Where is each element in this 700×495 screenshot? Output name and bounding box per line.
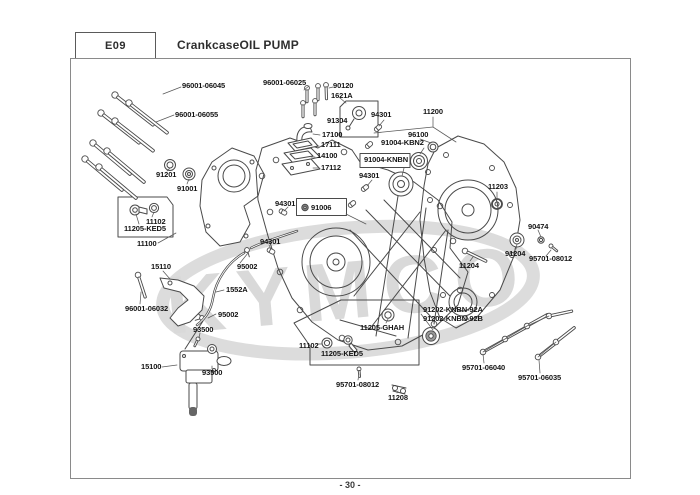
- part-label-11205-GHAH: 11205-GHAH: [360, 324, 404, 332]
- part-label-91204: 91204: [505, 250, 525, 258]
- part-label-95002-b: 95002: [218, 311, 238, 319]
- part-label-96001-06025: 96001-06025: [263, 79, 306, 87]
- part-label-91004-KNBN: 91004-KNBN: [364, 156, 408, 164]
- part-label-90120: 90120: [333, 82, 353, 90]
- part-label-95701-06040: 95701-06040: [462, 364, 505, 372]
- part-label-94301-a: 94301: [371, 111, 391, 119]
- part-label-15100: 15100: [141, 363, 161, 371]
- part-label-94301-d: 94301: [260, 238, 280, 246]
- part-label-11205-KED5-a: 11205-KED5: [124, 225, 166, 233]
- part-label-11100: 11100: [137, 240, 157, 248]
- part-label-91201: 91201: [156, 171, 176, 179]
- part-label-11102-b: 11102: [299, 342, 319, 350]
- part-label-91006: 91006: [311, 204, 331, 212]
- part-label-95701-08012-a: 95701-08012: [529, 255, 572, 263]
- part-label-1621A: 1621A: [331, 92, 353, 100]
- part-label-15110: 15110: [151, 263, 171, 271]
- part-label-90474: 90474: [528, 223, 548, 231]
- part-label-14100: 14100: [317, 152, 337, 160]
- part-label-95701-06035: 95701-06035: [518, 374, 561, 382]
- exploded-diagram: KYMCO: [0, 0, 700, 495]
- part-label-11200: 11200: [423, 108, 443, 116]
- part-label-11203: 11203: [488, 183, 508, 191]
- part-label-91202-KNBN-92B: 91202-KNBN-92B: [423, 315, 483, 323]
- part-label-17100: 17100: [322, 131, 342, 139]
- part-label-93500-a: 93500: [193, 326, 213, 334]
- part-label-17111: 17111: [321, 141, 341, 149]
- page-number: - 30 -: [0, 480, 700, 490]
- part-label-96001-06045: 96001-06045: [182, 82, 225, 90]
- part-label-91001: 91001: [177, 185, 197, 193]
- part-label-96001-06032: 96001-06032: [125, 305, 168, 313]
- part-label-95002-a: 95002: [237, 263, 257, 271]
- part-label-11204: 11204: [459, 262, 479, 270]
- part-label-95701-08012-b: 95701-08012: [336, 381, 379, 389]
- part-label-11205-KED5-b: 11205-KED5: [321, 350, 363, 358]
- part-label-93500-b: 93500: [202, 369, 222, 377]
- part-label-94301-c: 94301: [275, 200, 295, 208]
- part-label-94301-b: 94301: [359, 172, 379, 180]
- part-label-1552A: 1552A: [226, 286, 248, 294]
- part-label-11208: 11208: [388, 394, 408, 402]
- part-label-17112: 17112: [321, 164, 341, 172]
- part-label-91304: 91304: [327, 117, 347, 125]
- watermark-text: KYMCO: [162, 229, 534, 351]
- part-label-91004-KBN2: 91004-KBN2: [381, 139, 424, 147]
- part-label-96001-06055: 96001-06055: [175, 111, 218, 119]
- parts-catalog-page: E09 CrankcaseOIL PUMP KYMCO: [0, 0, 700, 495]
- part-label-91202-KNBN-92A: 91202-KNBN-92A: [423, 306, 483, 314]
